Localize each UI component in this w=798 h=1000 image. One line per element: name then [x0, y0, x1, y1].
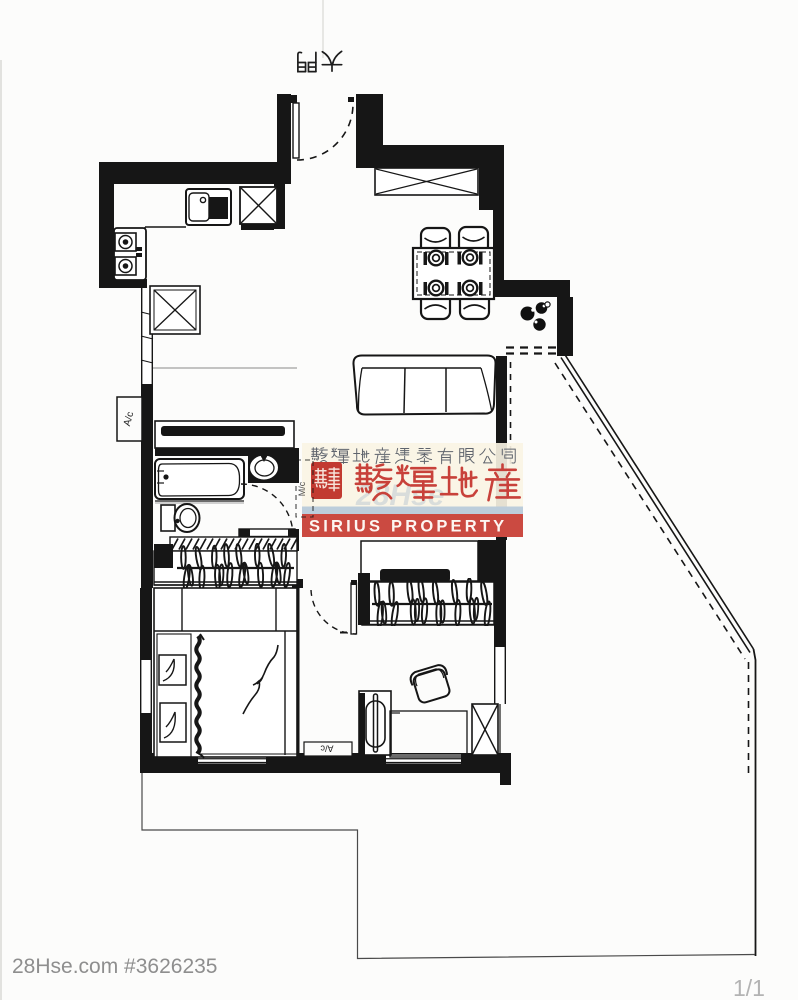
svg-text:SIRIUS PROPERTY: SIRIUS PROPERTY — [309, 518, 507, 536]
svg-text:1/1: 1/1 — [733, 975, 765, 1000]
svg-text:28Hse.com #3626235: 28Hse.com #3626235 — [12, 955, 217, 978]
svg-text:A/c: A/c — [320, 744, 334, 754]
svg-text:M/c: M/c — [297, 481, 307, 496]
